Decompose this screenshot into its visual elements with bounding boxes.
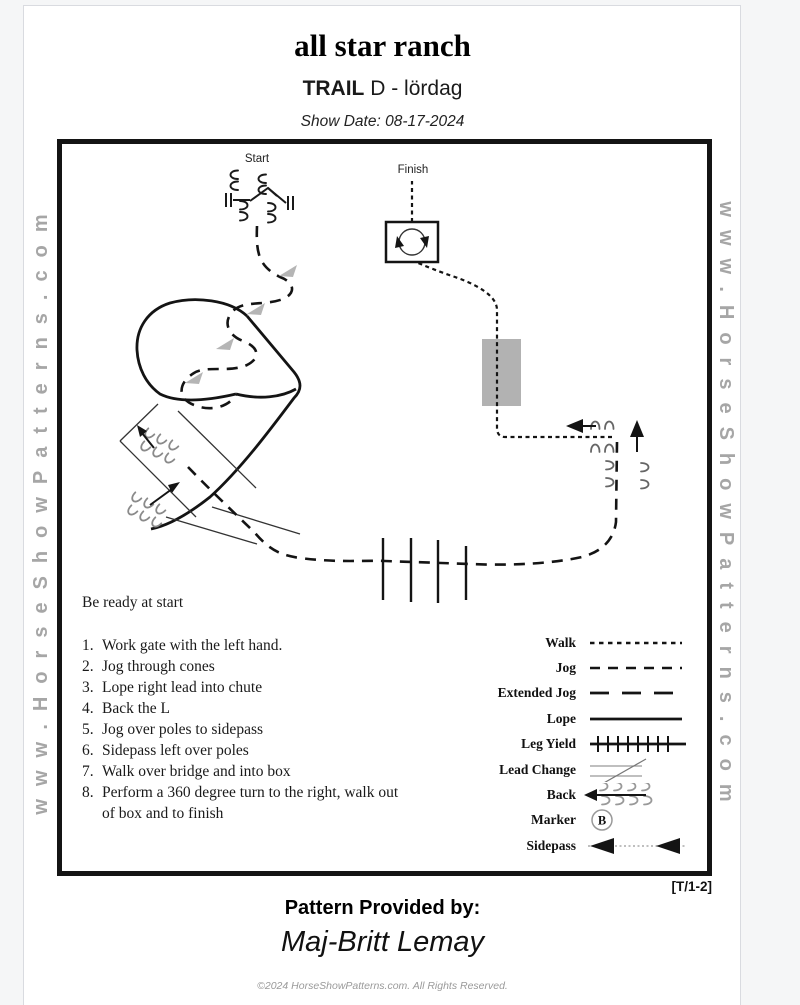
lope-line-icon — [582, 707, 708, 731]
legend-row-jog: Jog — [462, 655, 708, 680]
extended-jog-line-icon — [582, 681, 708, 705]
cone-icon — [216, 338, 234, 350]
lead-change-icon — [582, 758, 708, 782]
class-name: D - lördag — [370, 77, 462, 100]
legend: Walk Jog Extended Jog Lope Leg Yield Lea… — [462, 630, 708, 859]
finish-label: Finish — [398, 164, 429, 176]
start-label: Start — [245, 153, 270, 165]
marker-icon: B — [582, 808, 708, 832]
ready-note: Be ready at start — [82, 592, 412, 613]
trail-label: TRAIL — [303, 77, 365, 100]
step-item: 7.Walk over bridge and into box — [82, 761, 412, 782]
legend-row-leg-yield: Leg Yield — [462, 732, 708, 757]
back-l-hoofprints — [126, 428, 178, 528]
bridge — [482, 339, 521, 406]
sidepass-obstacle — [566, 419, 649, 489]
step-item: 3.Lope right lead into chute — [82, 677, 412, 698]
provider-name: Maj-Britt Lemay — [23, 926, 742, 959]
jog-line-icon — [582, 656, 708, 680]
page-title: all star ranch — [23, 28, 742, 64]
step-item: 8.Perform a 360 degree turn to the right… — [82, 782, 412, 824]
step-item: 1.Work gate with the left hand. — [82, 635, 412, 656]
lope-path — [137, 300, 300, 529]
legend-row-back: Back — [462, 782, 708, 807]
trail-pattern-page: all star ranch TRAIL D - lördag Show Dat… — [0, 0, 800, 1005]
cone-icons — [185, 265, 297, 384]
copyright-notice: ©2024 HorseShowPatterns.com. All Rights … — [23, 980, 742, 992]
back-icon — [582, 783, 708, 807]
show-date: Show Date: 08-17-2024 — [23, 113, 742, 131]
pattern-code: [T/1-2] — [57, 879, 712, 894]
walk-line-icon — [582, 631, 708, 655]
step-list: 1.Work gate with the left hand. 2.Jog th… — [82, 635, 412, 824]
jog-path — [188, 442, 617, 565]
finish-turn-box — [386, 222, 438, 262]
watermark-left: www.HorseShowPatterns.com — [24, 118, 58, 898]
step-item: 6.Sidepass left over poles — [82, 740, 412, 761]
class-title: TRAIL D - lördag — [23, 77, 742, 101]
gate-hoofprints — [231, 171, 276, 223]
legend-row-lead-change: Lead Change — [462, 757, 708, 782]
sidepass-icon — [582, 834, 708, 858]
start-gate-obstacle — [226, 171, 293, 223]
cone-icon — [247, 303, 265, 315]
marker-letter: B — [598, 814, 606, 828]
step-item: 2.Jog through cones — [82, 656, 412, 677]
step-item: 5.Jog over poles to sidepass — [82, 719, 412, 740]
instructions: Be ready at start 1.Work gate with the l… — [82, 592, 412, 824]
provided-by-label: Pattern Provided by: — [23, 897, 742, 920]
legend-row-sidepass: Sidepass — [462, 833, 708, 858]
watermark-right: www.HorseShowPatterns.com — [709, 118, 743, 898]
leg-yield-icon — [582, 732, 708, 756]
legend-row-marker: Marker B — [462, 808, 708, 833]
cone-icon — [279, 265, 297, 277]
legend-row-walk: Walk — [462, 630, 708, 655]
legend-row-lope: Lope — [462, 706, 708, 731]
legend-row-extended-jog: Extended Jog — [462, 681, 708, 706]
step-item: 4.Back the L — [82, 698, 412, 719]
